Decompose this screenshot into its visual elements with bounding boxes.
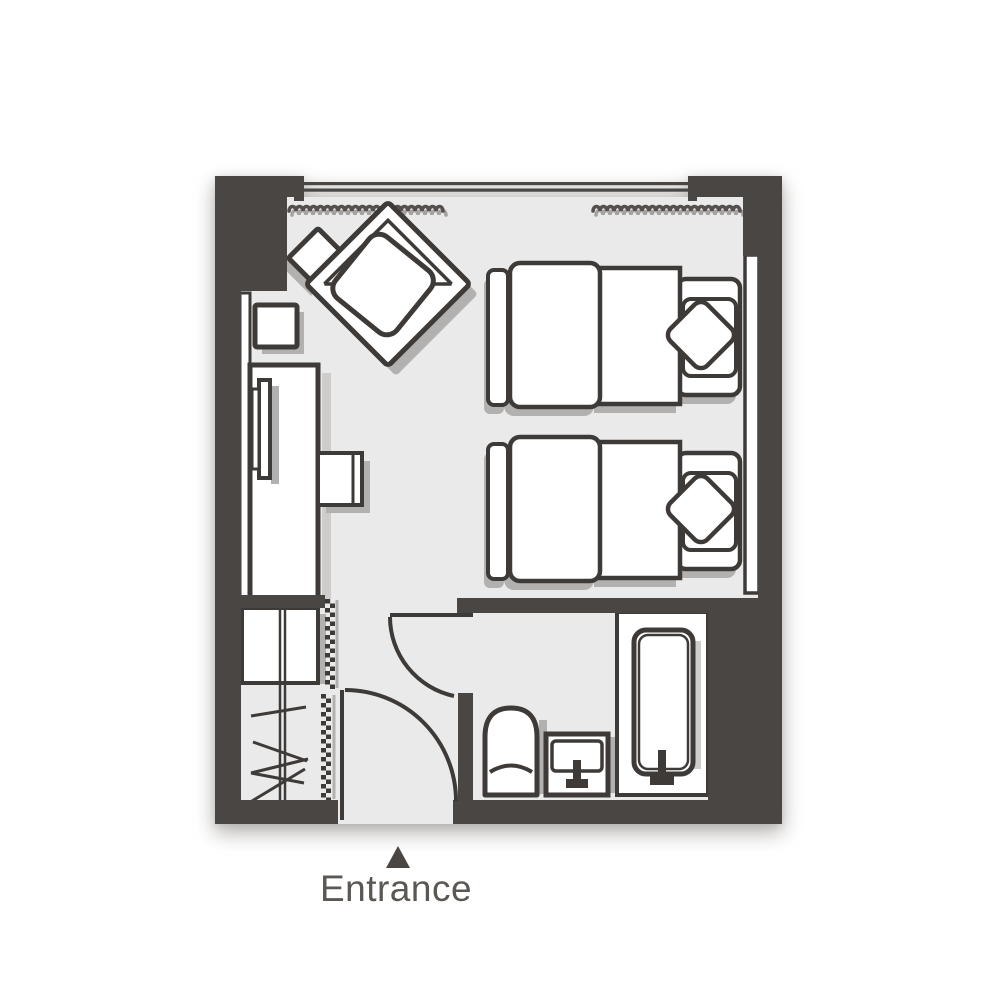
window-outer-line [304,182,688,185]
wall-closet-partition [240,595,325,608]
twin-bed-1 [484,263,740,416]
entrance-marker-icon [386,846,410,868]
floor-plan: Entrance [0,0,1000,1000]
bathtub-faucet [658,750,666,777]
wall-bathroom-right [708,598,782,824]
floor-plan-page: Entrance [0,0,1000,1000]
twin-bed-2 [484,437,740,590]
wall-top-left [215,176,304,197]
bedside-console [745,255,759,593]
window-bracket-right [688,176,697,201]
desk-chair-icon [318,453,362,505]
wall-bathroom-top [457,598,712,613]
wall-right [758,255,782,600]
plan-group [215,176,782,824]
wall-bottom-left [215,800,338,824]
closet-shelf-shadow [319,614,326,684]
window-bracket-left [294,176,304,201]
toilet-icon [485,708,537,795]
wall-corner-right [743,197,782,256]
wall-bathroom-stub [458,693,473,803]
window-inner-line [304,189,688,192]
bathtub-faucet-bar [650,776,674,785]
entrance-floor [338,800,455,824]
sink-faucet-bar [566,779,588,788]
tv-icon [259,380,270,478]
tv-shadow [271,386,279,484]
wall-top-right [697,176,782,197]
wall-bottom-right [453,800,708,824]
sink-faucet [573,760,581,782]
wall-left [215,291,241,824]
tv-mount [248,407,252,449]
tv-panel [252,389,259,469]
wall-corner-left [215,197,287,291]
stool-icon [255,305,297,347]
entrance-label: Entrance [320,868,472,909]
